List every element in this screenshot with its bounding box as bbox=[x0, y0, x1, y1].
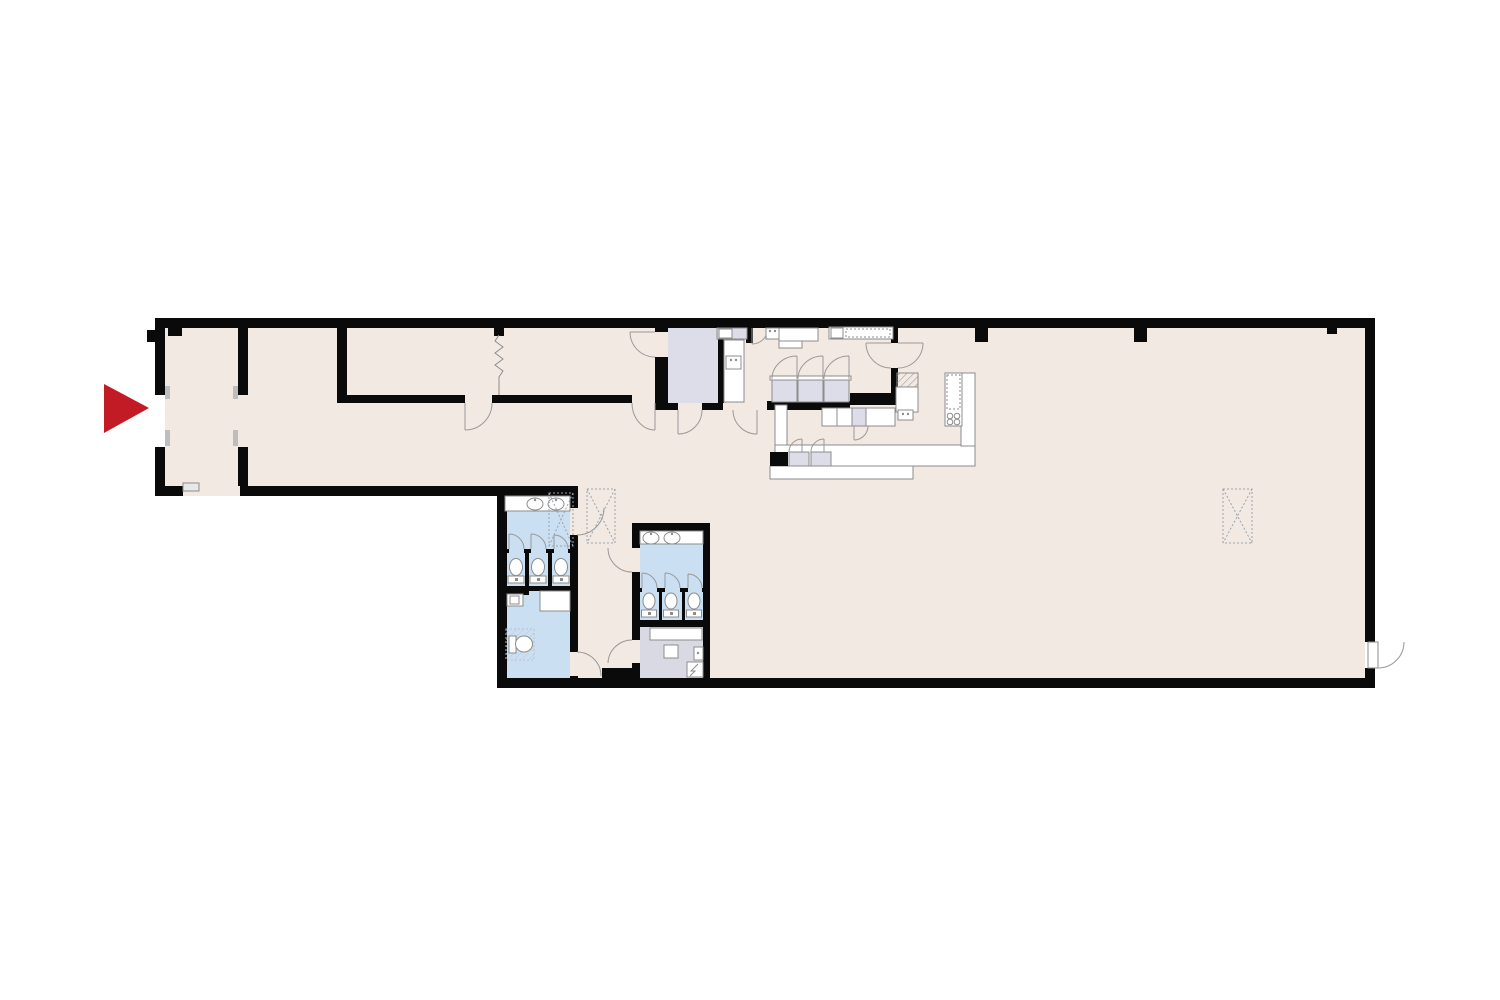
rooms-wall-bottom-a bbox=[337, 395, 465, 403]
pillar-2 bbox=[975, 328, 988, 342]
accessible-toilet-icon bbox=[509, 636, 533, 653]
stall-divider bbox=[682, 592, 685, 620]
faucet-dot bbox=[902, 413, 904, 415]
vestibule-wall-upper bbox=[238, 328, 248, 395]
shelf bbox=[650, 628, 702, 640]
restroom-left-wall-b bbox=[570, 535, 578, 652]
restroom-right-wall-b bbox=[632, 572, 640, 640]
panel-dot bbox=[697, 652, 699, 654]
electrical-panel bbox=[687, 662, 703, 677]
floor-unit bbox=[664, 645, 678, 658]
faucet-dot bbox=[774, 330, 776, 332]
wall-right-lower bbox=[1365, 668, 1375, 688]
counter bbox=[779, 328, 818, 341]
stall-back-wall bbox=[640, 620, 703, 627]
rooms-pillar-mid bbox=[494, 328, 504, 336]
walkin-wall-bottom-a bbox=[655, 403, 678, 410]
toilet-icon bbox=[530, 559, 546, 584]
sink bbox=[719, 329, 732, 338]
stall-door-gap bbox=[554, 549, 568, 553]
stall-divider bbox=[659, 592, 662, 620]
sink bbox=[898, 410, 913, 420]
prep-counter bbox=[724, 340, 744, 402]
wall-bottomleft-b bbox=[240, 486, 577, 496]
floor-plan-page bbox=[0, 0, 1500, 1000]
radiator bbox=[183, 483, 199, 491]
counter bbox=[896, 387, 918, 412]
door-jamb bbox=[233, 386, 238, 399]
stall-door-gap bbox=[509, 549, 524, 553]
faucet-dot bbox=[735, 359, 737, 361]
stall-divider bbox=[548, 553, 552, 586]
counter-strip bbox=[961, 373, 975, 446]
kitchen-wall-bottom-b bbox=[850, 393, 898, 405]
refrigerator bbox=[824, 380, 849, 402]
rooms-wall-right-b bbox=[655, 357, 668, 403]
counter-step bbox=[779, 341, 802, 348]
restroom-right-wall-c bbox=[632, 663, 640, 688]
walkin-wall-bottom-b bbox=[702, 403, 723, 410]
island-shelf bbox=[770, 466, 913, 479]
island-fridge bbox=[789, 452, 809, 466]
sink bbox=[831, 328, 843, 338]
stall-door-gap bbox=[665, 588, 680, 592]
counter-edge bbox=[770, 376, 851, 380]
restroom-right-wall-side bbox=[703, 523, 710, 688]
walkin-room-floor bbox=[668, 328, 718, 403]
faucet-dot bbox=[671, 533, 673, 535]
faucet-dot bbox=[730, 359, 732, 361]
restroom-right-wall-top bbox=[632, 523, 710, 531]
pillar-1 bbox=[168, 328, 182, 336]
refrigerator bbox=[772, 380, 797, 402]
toilet-icon bbox=[687, 593, 702, 617]
refrigerator bbox=[798, 380, 823, 402]
toilet-icon bbox=[664, 593, 679, 617]
wall-right-upper bbox=[1365, 328, 1375, 642]
rooms-wall-right-a bbox=[655, 328, 668, 332]
stall-door-gap bbox=[642, 588, 657, 592]
door-leaf bbox=[1368, 642, 1378, 668]
pillar-3 bbox=[1134, 328, 1147, 342]
walkin-wall-right bbox=[718, 338, 724, 403]
island-fridge bbox=[811, 452, 831, 466]
wall-top bbox=[155, 318, 1375, 328]
floor-plan-image bbox=[0, 0, 1500, 1000]
wall-left-upper bbox=[155, 328, 165, 395]
faucet-dot bbox=[534, 499, 536, 501]
vestibule-wall-lower bbox=[238, 447, 248, 486]
faucet-dot bbox=[650, 533, 652, 535]
stall-door-gap bbox=[688, 588, 702, 592]
sink bbox=[726, 356, 741, 369]
exit-door bbox=[1368, 642, 1404, 668]
sink bbox=[766, 328, 779, 339]
toilet-icon bbox=[642, 593, 657, 617]
toilet-icon bbox=[508, 559, 524, 584]
door-arc bbox=[1378, 642, 1404, 668]
rooms-wall-left bbox=[337, 328, 347, 403]
toilet-icon bbox=[553, 559, 569, 584]
wall-left-stub bbox=[147, 330, 155, 342]
door-jamb bbox=[165, 386, 170, 399]
hatched-unit bbox=[897, 373, 918, 387]
restroom-left-wall-c bbox=[570, 676, 578, 688]
faucet-dot bbox=[907, 413, 909, 415]
under-counter-unit bbox=[852, 408, 866, 426]
stall-door-gap bbox=[531, 549, 546, 553]
pillar-4 bbox=[1327, 328, 1337, 334]
door-jamb bbox=[165, 430, 170, 446]
stall-back-wall bbox=[507, 586, 570, 591]
counter bbox=[540, 591, 570, 611]
door-jamb bbox=[233, 430, 238, 446]
faucet-dot bbox=[769, 330, 771, 332]
stall-divider bbox=[525, 553, 529, 586]
faucet-dot bbox=[555, 499, 557, 501]
counter-strip bbox=[775, 405, 787, 446]
corridor-wall-chunk bbox=[602, 668, 633, 680]
rooms-wall-bottom-b bbox=[492, 395, 632, 403]
island-wall-block bbox=[770, 452, 788, 466]
wall-bottomleft-a bbox=[155, 486, 183, 496]
entrance-arrow-icon bbox=[104, 384, 149, 433]
